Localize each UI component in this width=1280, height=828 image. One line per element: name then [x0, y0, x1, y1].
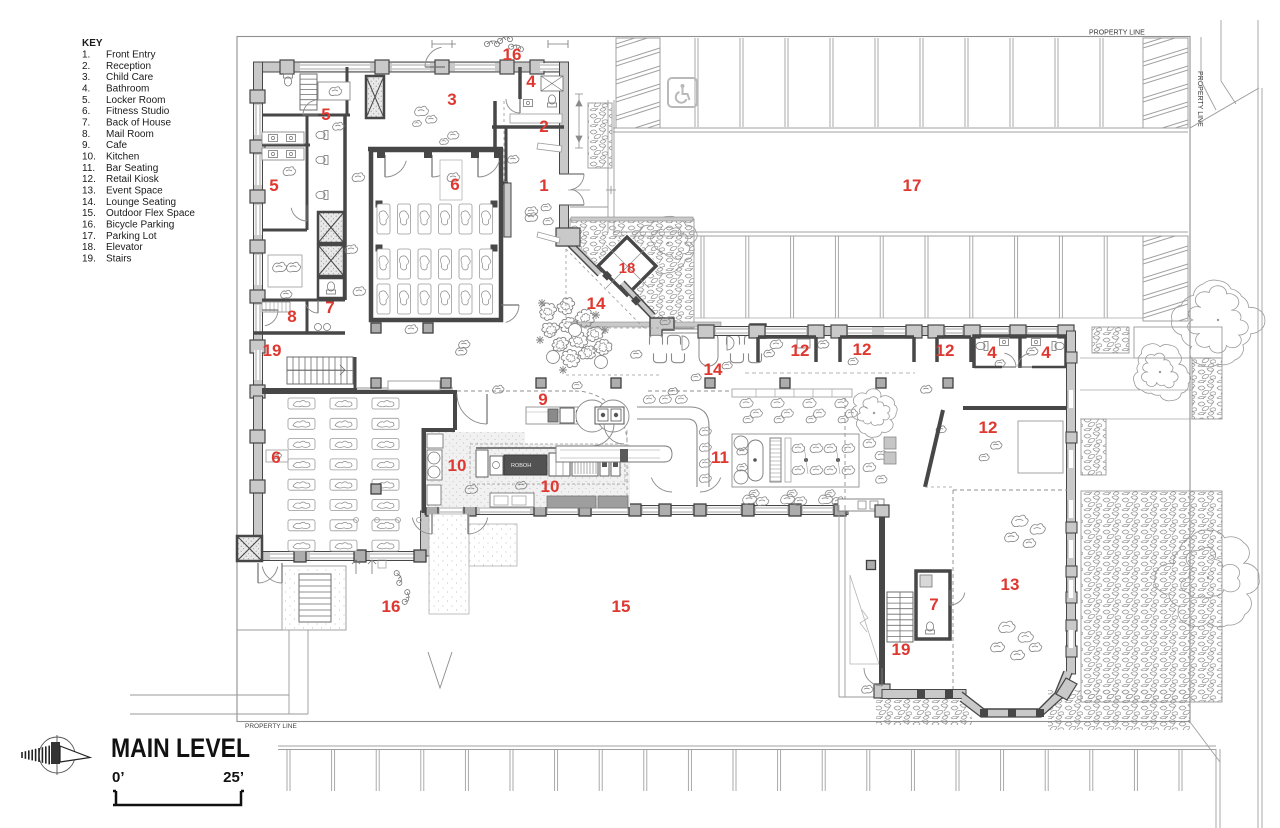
svg-text:4.: 4.	[82, 84, 90, 95]
svg-text:ROBOH: ROBOH	[511, 463, 531, 469]
svg-text:13.: 13.	[82, 186, 96, 197]
svg-text:Parking Lot: Parking Lot	[106, 231, 157, 242]
svg-text:12.: 12.	[82, 174, 96, 185]
svg-text:0’: 0’	[112, 769, 125, 786]
svg-text:Cafe: Cafe	[106, 140, 128, 151]
svg-text:PROPERTY LINE: PROPERTY LINE	[1089, 30, 1145, 37]
svg-text:3.: 3.	[82, 72, 90, 83]
svg-text:Back of House: Back of House	[106, 118, 171, 129]
svg-text:5: 5	[269, 176, 278, 195]
svg-text:8: 8	[287, 307, 296, 326]
svg-text:Stairs: Stairs	[106, 253, 132, 264]
svg-text:14: 14	[587, 294, 606, 313]
svg-text:13: 13	[1001, 575, 1020, 594]
svg-text:16: 16	[382, 597, 401, 616]
svg-text:Fitness Studio: Fitness Studio	[106, 106, 170, 117]
svg-text:19: 19	[892, 640, 911, 659]
svg-text:9: 9	[538, 390, 547, 409]
svg-text:Elevator: Elevator	[106, 242, 143, 253]
svg-text:Lounge Seating: Lounge Seating	[106, 197, 176, 208]
svg-text:3: 3	[447, 90, 456, 109]
svg-text:10.: 10.	[82, 152, 96, 163]
svg-text:12: 12	[979, 418, 998, 437]
svg-text:2.: 2.	[82, 61, 90, 72]
svg-text:11: 11	[711, 448, 729, 467]
svg-text:MAIN LEVEL: MAIN LEVEL	[111, 733, 250, 763]
svg-text:Outdoor Flex Space: Outdoor Flex Space	[106, 208, 195, 219]
svg-text:10: 10	[448, 456, 467, 475]
svg-text:1.: 1.	[82, 50, 90, 61]
svg-text:Front Entry: Front Entry	[106, 50, 155, 61]
svg-text:18.: 18.	[82, 242, 96, 253]
svg-text:PROPERTY LINE: PROPERTY LINE	[1196, 71, 1203, 127]
svg-text:4: 4	[1041, 343, 1051, 362]
svg-text:6.: 6.	[82, 106, 90, 117]
svg-text:Child Care: Child Care	[106, 72, 154, 83]
svg-text:Reception: Reception	[106, 61, 151, 72]
svg-text:16: 16	[503, 45, 522, 64]
svg-text:5: 5	[321, 105, 330, 124]
svg-text:12: 12	[853, 340, 872, 359]
svg-text:8.: 8.	[82, 129, 90, 140]
svg-text:2: 2	[539, 117, 548, 136]
svg-text:7: 7	[325, 298, 334, 317]
svg-text:15.: 15.	[82, 208, 96, 219]
svg-text:Kitchen: Kitchen	[106, 152, 139, 163]
svg-text:10: 10	[541, 477, 560, 496]
svg-text:18: 18	[619, 260, 636, 277]
svg-text:5.: 5.	[82, 95, 90, 106]
svg-text:Retail Kiosk: Retail Kiosk	[106, 174, 160, 185]
svg-text:12: 12	[791, 341, 810, 360]
svg-text:PROPERTY LINE: PROPERTY LINE	[245, 723, 297, 730]
svg-text:Bar Seating: Bar Seating	[106, 163, 158, 174]
svg-text:16.: 16.	[82, 219, 96, 230]
svg-text:6: 6	[271, 448, 280, 467]
svg-text:Bicycle Parking: Bicycle Parking	[106, 219, 174, 230]
svg-text:6: 6	[450, 175, 459, 194]
svg-text:1: 1	[539, 176, 548, 195]
svg-text:Bathroom: Bathroom	[106, 84, 149, 95]
svg-text:7: 7	[929, 595, 938, 614]
svg-text:4: 4	[987, 343, 997, 362]
svg-text:19: 19	[263, 341, 282, 360]
svg-text:25’: 25’	[223, 769, 244, 786]
svg-text:15: 15	[612, 597, 631, 616]
svg-text:11.: 11.	[82, 163, 95, 174]
svg-text:Event Space: Event Space	[106, 186, 163, 197]
svg-text:KEY: KEY	[82, 38, 103, 49]
svg-text:7.: 7.	[82, 118, 90, 129]
svg-text:14.: 14.	[82, 197, 96, 208]
svg-text:4: 4	[526, 72, 536, 91]
svg-text:17.: 17.	[82, 231, 96, 242]
svg-text:Mail Room: Mail Room	[106, 129, 154, 140]
svg-text:17: 17	[903, 176, 922, 195]
svg-text:14: 14	[704, 360, 723, 379]
svg-text:Locker Room: Locker Room	[106, 95, 165, 106]
svg-text:12: 12	[936, 341, 955, 360]
svg-text:9.: 9.	[82, 140, 90, 151]
svg-text:19.: 19.	[82, 253, 96, 264]
